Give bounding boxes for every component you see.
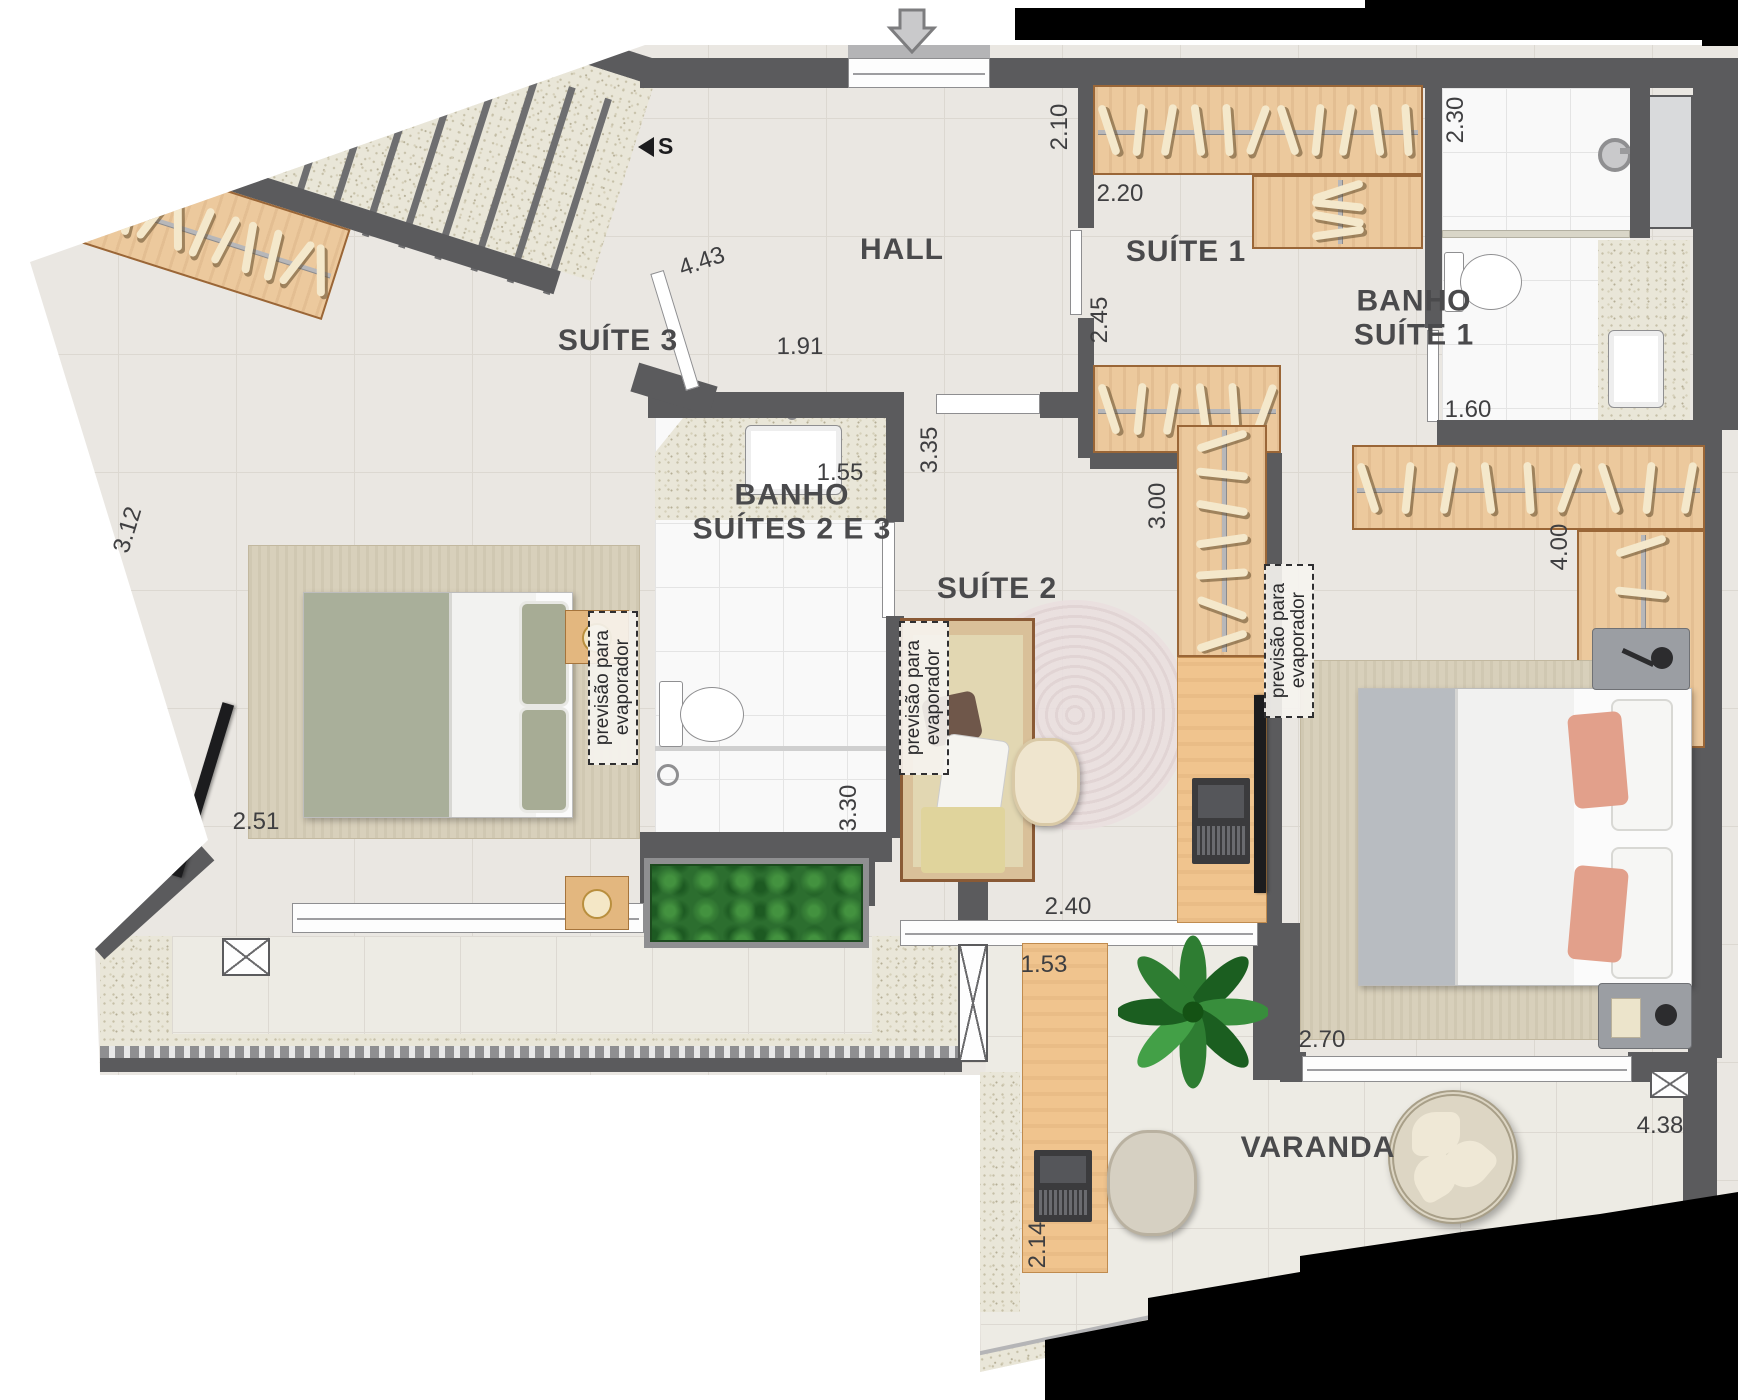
evaporator-note: previsão para evaporador [899, 621, 949, 775]
floor-plan: S [0, 0, 1738, 1400]
evaporator-note: previsão para evaporador [1264, 564, 1314, 718]
evaporator-notes: previsão para evaporadorprevisão para ev… [0, 0, 1738, 1400]
evaporator-note: previsão para evaporador [588, 611, 638, 765]
